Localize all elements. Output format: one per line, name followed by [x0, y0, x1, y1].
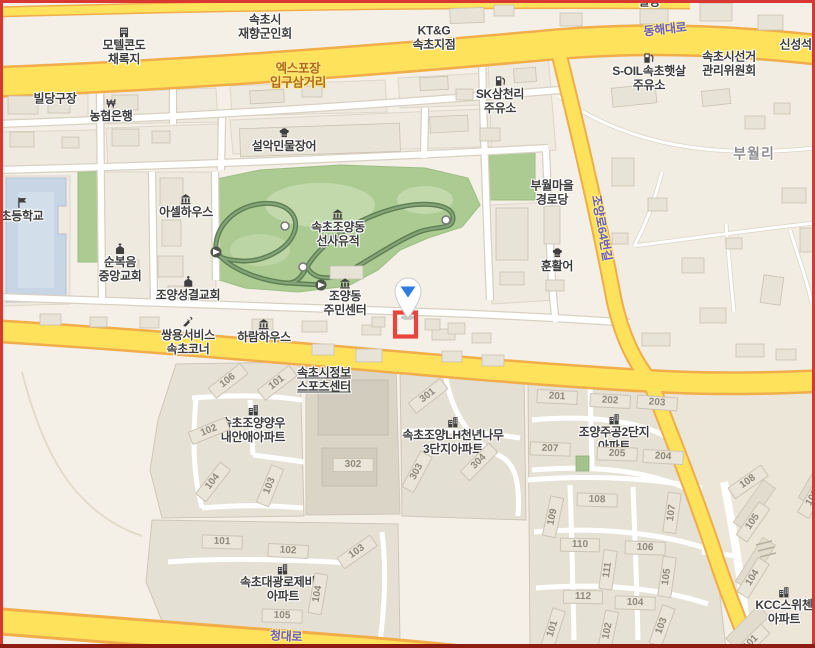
- school-grounds: [6, 178, 66, 302]
- location-marker[interactable]: [388, 272, 428, 320]
- playground: [576, 456, 589, 471]
- map-base-graphics: [0, 0, 815, 648]
- marker-pin: [395, 278, 421, 318]
- map-viewport[interactable]: 빌딩속초시재향군인회모텔콘도채록지KT&G속초지점동해대로엑스포장입구삼거리신성…: [0, 0, 815, 648]
